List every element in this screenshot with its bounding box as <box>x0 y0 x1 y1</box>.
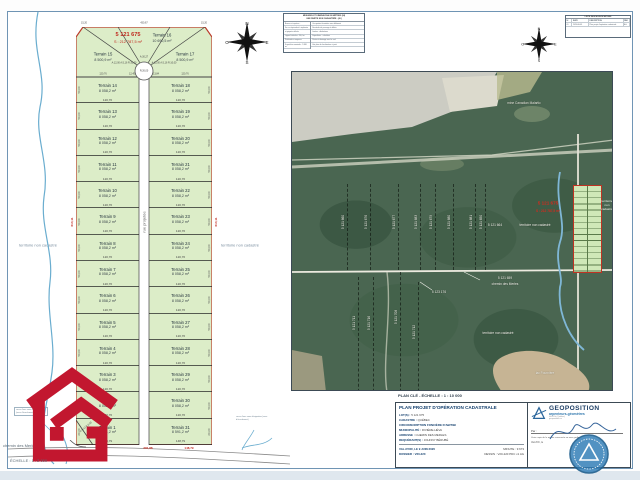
svg-text:O: O <box>521 43 524 47</box>
fan-left-name: Terrain 15 <box>83 52 123 57</box>
compass-rose-left: N S E O <box>225 20 269 64</box>
lot-cell-left: Terrain 98 058,2 m²120,76 <box>76 208 139 234</box>
lot-name: Terrain 30 <box>149 398 212 403</box>
lot-depth-dim-right: 60,60 <box>207 428 211 435</box>
svg-text:E: E <box>554 43 557 47</box>
lot-cell-left: Terrain 148 058,2 m²120,76 <box>76 77 139 103</box>
lot-cell-left: Terrain 138 058,2 m²120,76 <box>76 103 139 129</box>
lot-cell-right: Terrain 278 058,2 m²120,76 <box>149 314 212 340</box>
lot-width-dim: 120,76 <box>149 361 212 365</box>
plat-lot-number: 5 121 675 <box>116 32 141 38</box>
svg-text:N: N <box>245 21 248 26</box>
lot-area: 8 058,2 m² <box>149 115 212 119</box>
revision-cell: AG <box>624 23 630 26</box>
map-lot-label: territoire non cadastré <box>482 331 513 335</box>
map-caption: PLAN CLÉ - ÉCHELLE : 1 : 10 000 <box>398 393 462 398</box>
lot-depth-dim-left: 50,00 <box>77 244 81 251</box>
lot-name: Terrain 14 <box>76 83 139 88</box>
surveyor-seal <box>568 433 610 475</box>
footer-left: VAL-D'OR, LE 9 JUIN 2020 <box>399 447 435 451</box>
fan-right-dims: A:12,00 A:5,16 R:10,00 <box>151 63 177 66</box>
lot-cell-left: Terrain 118 058,2 m²120,76 <box>76 156 139 182</box>
lot-cell-right: Terrain 288 058,2 m²120,76 <box>149 340 212 366</box>
title-field: REQUÉRANT(S) : JOHNNY BÉRUBÉ <box>399 438 524 442</box>
fan-radius-label: R:26,00 <box>140 70 148 73</box>
revision-cell: PAR <box>624 19 630 22</box>
firm-logo-icon <box>531 405 547 421</box>
lot-depth-dim-right: 50,00 <box>207 376 211 383</box>
map-lot-boundary <box>420 184 421 270</box>
svg-text:S: S <box>538 59 541 62</box>
lot-area: 8 058,2 m² <box>149 89 212 93</box>
lot-area: 8 058,2 m² <box>149 194 212 198</box>
lot-cell-left: Terrain 128 058,2 m²120,76 <box>76 130 139 156</box>
legend-table: MESURES ET DIMENSIONS EN MÈTRES (SI) UNE… <box>283 13 365 53</box>
lot-name: Terrain 25 <box>149 267 212 272</box>
bottom-margin <box>0 471 640 480</box>
lot-depth-dim-left: 50,00 <box>77 349 81 356</box>
map-subject-lot-label: 5 121 675 <box>538 201 558 206</box>
lot-area: 8 058,2 m² <box>76 115 139 119</box>
lot-area: 8 058,2 m² <box>149 246 212 250</box>
map-lot-label: 5 121 676 <box>364 215 368 229</box>
lot-area: 8 058,2 m² <box>149 351 212 355</box>
lot-width-dim: 120,76 <box>149 203 212 207</box>
legend-right-column: Occupation forestière sans bâtimentServi… <box>311 22 364 49</box>
fan-right-name: Terrain 17 <box>165 52 205 57</box>
lot-name: Terrain 21 <box>149 162 212 167</box>
svg-text:O: O <box>225 40 229 45</box>
title-block-fields: PLAN PROJET D'OPÉRATION CADASTRALE LOT(S… <box>396 403 528 467</box>
lot-area: 8 058,2 m² <box>76 272 139 276</box>
dim-bottom-2: 148,79 <box>184 446 193 450</box>
map-lot-label: 5 121 677 <box>392 215 396 229</box>
lot-area: 8 058,2 m² <box>149 141 212 145</box>
lot-cell-right: Terrain 238 058,2 m²120,76 <box>149 208 212 234</box>
map-lot-label: 5 121 680 <box>447 215 451 229</box>
geoposition-watermark-logo <box>26 366 118 464</box>
title-block: PLAN PROJET D'OPÉRATION CADASTRALE LOT(S… <box>395 402 631 468</box>
lot-name: Terrain 11 <box>76 162 139 167</box>
map-lot-boundary <box>358 277 359 391</box>
lot-width-dim: 120,76 <box>76 203 139 207</box>
lot-name: Terrain 29 <box>149 372 212 377</box>
svg-text:S: S <box>245 60 248 64</box>
plan-sheet: territoire non cadastré territoire non c… <box>0 0 640 480</box>
lot-depth-dim-right: 50,00 <box>207 192 211 199</box>
svg-text:E: E <box>265 40 268 45</box>
lot-name: Terrain 28 <box>149 346 212 351</box>
lot-width-dim: 120,76 <box>76 282 139 286</box>
revision-data-row: 012020-06-09Plan projet d'opération cada… <box>566 23 630 27</box>
lot-area: 8 058,2 m² <box>149 220 212 224</box>
lot-name: Terrain 23 <box>149 214 212 219</box>
lot-width-dim: 120,76 <box>149 229 212 233</box>
lot-name: Terrain 4 <box>76 346 139 351</box>
lot-cell-left: Terrain 108 058,2 m²120,76 <box>76 182 139 208</box>
field-label: MUNICIPALITÉ : <box>399 428 422 432</box>
lot-width-dim: 120,76 <box>76 98 139 102</box>
firm-block: GEOPOSITION arpenteurs-géomètres Val-d'O… <box>528 403 630 467</box>
map-lot-boundary <box>370 184 371 270</box>
lot-depth-dim-right: 50,00 <box>207 113 211 120</box>
firm-name: GEOPOSITION <box>549 405 600 412</box>
map-lot-label: lac Fournière <box>536 371 555 375</box>
plat-scale-label: ÉCHELLE : 1 : 2 000 <box>10 458 47 463</box>
lot-depth-dim-left: 50,00 <box>77 87 81 94</box>
svg-text:N: N <box>538 27 541 31</box>
lot-depth-dim-right: 50,00 <box>207 271 211 278</box>
revision-cell: DATE <box>572 19 589 22</box>
field-label: CADASTRE : <box>399 418 418 422</box>
lot-cell-right: Terrain 318 591,2 m²148,79 <box>149 419 212 445</box>
field-list: LOT(S) : 5 121 675CADASTRE : QUÉBECCIRCO… <box>399 412 524 443</box>
lot-width-dim: 120,76 <box>76 308 139 312</box>
field-label: REQUÉRANT(S) : <box>399 438 424 442</box>
lot-cell-right: Terrain 208 058,2 m²120,76 <box>149 130 212 156</box>
lot-width-dim: 120,76 <box>149 334 212 338</box>
fan-center-area: 10 690,5 m² <box>142 39 182 43</box>
map-lot-boundary <box>475 184 476 270</box>
dim-top-center: 430,67 <box>140 22 147 25</box>
lot-cell-right: Terrain 198 058,2 m²120,76 <box>149 103 212 129</box>
lot-width-dim: 120,76 <box>76 124 139 128</box>
map-inset-subdivision <box>573 185 602 273</box>
field-label: ADRESSE : <box>399 433 416 437</box>
map-lot-boundary <box>453 184 454 270</box>
lot-name: Terrain 13 <box>76 109 139 114</box>
map-lot-boundary <box>435 184 436 270</box>
map-lot-label: 5 121 659 <box>498 276 512 280</box>
lot-name: Terrain 7 <box>76 267 139 272</box>
lot-depth-dim-right: 50,00 <box>207 139 211 146</box>
lot-area: 8 058,2 m² <box>149 404 212 408</box>
footer-right: MINUTE : 9 673 <box>503 447 524 451</box>
street-name-label: rue projetée <box>142 211 147 232</box>
lot-area: 8 058,2 m² <box>149 299 212 303</box>
map-lot-label: territoire non cadastré <box>519 223 550 227</box>
lot-cell-right: Terrain 258 058,2 m²120,76 <box>149 261 212 287</box>
key-map: territoire non cadastré 5 121 6605 121 6… <box>291 71 613 391</box>
lot-area: 8 058,2 m² <box>149 378 212 382</box>
lot-cell-left: Terrain 68 058,2 m²120,76 <box>76 287 139 313</box>
lot-name: Terrain 24 <box>149 241 212 246</box>
map-lot-label: 5 121 681 <box>469 215 473 229</box>
fan-arc-label: A:30,27 <box>140 56 148 59</box>
lot-cell-left: Terrain 58 058,2 m²120,76 <box>76 314 139 340</box>
lot-name: Terrain 5 <box>76 320 139 325</box>
map-lot-label: 5 123 176 <box>432 290 446 294</box>
map-lot-label: 5 121 716 <box>367 316 371 330</box>
legend-title-2: UNE PARTIE NON CADASTRÉE - (M.) <box>306 18 341 20</box>
lot-area: 8 058,2 m² <box>76 141 139 145</box>
lot-depth-dim-left: 50,00 <box>77 323 81 330</box>
fan-center-name: Terrain 16 <box>142 33 182 38</box>
lot-width-dim: 120,76 <box>149 308 212 312</box>
lot-width-dim: 120,76 <box>76 150 139 154</box>
lot-name: Terrain 20 <box>149 136 212 141</box>
map-lot-label: 5 121 683 <box>414 215 418 229</box>
lot-cell-right: Terrain 228 058,2 m²120,76 <box>149 182 212 208</box>
lot-depth-dim-right: 50,00 <box>207 402 211 409</box>
map-lot-label: 5 121 711 <box>352 316 356 330</box>
map-subject-lot-label: S : 212 787,5 m² <box>536 209 560 213</box>
legend-row: Superficie nominale : 5 860 m² <box>284 43 310 49</box>
lot-width-dim: 120,76 <box>149 98 212 102</box>
lot-cell-left: Terrain 88 058,2 m²120,76 <box>76 235 139 261</box>
title-footer-row: DOSSIER : V20-220DESSIN : V20-220 PDC v1… <box>399 452 524 456</box>
lot-name: Terrain 31 <box>149 425 212 430</box>
lot-cell-left: Terrain 48 058,2 m²120,76 <box>76 340 139 366</box>
revision-table: LISTE DES MODIFICATIONS N°DATEDESCRIPTIO… <box>565 15 631 38</box>
territory-right-label: territoire non cadastré <box>216 242 264 247</box>
lot-depth-dim-right: 50,00 <box>207 297 211 304</box>
lot-cell-right: Terrain 308 058,2 m²120,76 <box>149 392 212 418</box>
dim-right-edge: 610,11 <box>214 217 218 226</box>
lot-area: 8 058,2 m² <box>76 299 139 303</box>
lot-depth-dim-right: 50,00 <box>207 87 211 94</box>
dim-bottom-1: 281,88 <box>143 446 152 450</box>
lot-cell-right: Terrain 298 058,2 m²120,76 <box>149 366 212 392</box>
map-lot-label: 5 121 650 <box>479 215 483 229</box>
lot-area: 8 058,2 m² <box>149 272 212 276</box>
dim-top-right: 15,20 <box>201 22 207 25</box>
lot-depth-dim-left: 50,00 <box>77 113 81 120</box>
map-lot-label: mine Canadian Malartic <box>507 101 540 105</box>
map-lot-label: 5 121 708 <box>394 310 398 324</box>
fan-width-left: 120,76 <box>99 72 106 75</box>
lot-width-dim: 120,76 <box>149 150 212 154</box>
title-field: ADRESSE : CHEMIN DES MERLES <box>399 433 524 437</box>
lot-area: 8 058,2 m² <box>76 246 139 250</box>
lot-area: 8 591,2 m² <box>149 430 212 434</box>
lot-area: 8 058,2 m² <box>149 325 212 329</box>
lot-width-dim: 120,76 <box>149 255 212 259</box>
lot-width-dim: 120,76 <box>76 255 139 259</box>
revision-cell: DESCRIPTION <box>589 19 624 22</box>
lot-cell-left: Terrain 78 058,2 m²120,76 <box>76 261 139 287</box>
lot-area: 8 058,2 m² <box>76 89 139 93</box>
lot-width-dim: 120,76 <box>149 387 212 391</box>
lot-depth-dim-left: 50,00 <box>77 165 81 172</box>
lot-cell-right: Terrain 188 058,2 m²120,76 <box>149 77 212 103</box>
lot-depth-dim-right: 50,00 <box>207 165 211 172</box>
compass-rose-right: N S E O <box>521 26 557 62</box>
lot-depth-dim-left: 50,00 <box>77 271 81 278</box>
lot-width-dim: 148,79 <box>149 439 212 443</box>
lot-name: Terrain 8 <box>76 241 139 246</box>
dim-left-edge: 610,11 <box>70 217 74 226</box>
river-note-right: cours d'eau sans désignation (sens d'éco… <box>236 416 268 421</box>
lot-cell-right: Terrain 248 058,2 m²120,76 <box>149 235 212 261</box>
revision-cell: Plan projet d'opération cadastrale <box>589 23 624 26</box>
lot-name: Terrain 18 <box>149 83 212 88</box>
lot-width-dim: 120,76 <box>149 177 212 181</box>
lot-area: 8 058,2 m² <box>76 351 139 355</box>
lot-name: Terrain 26 <box>149 293 212 298</box>
map-lot-label: 5 121 712 <box>412 325 416 339</box>
map-lot-label: chemin des Merles <box>492 282 519 286</box>
lot-name: Terrain 6 <box>76 293 139 298</box>
lot-name: Terrain 22 <box>149 188 212 193</box>
revision-rows: N°DATEDESCRIPTIONPAR012020-06-09Plan pro… <box>566 19 630 27</box>
lot-depth-dim-left: 50,00 <box>77 297 81 304</box>
title-block-footer: VAL-D'OR, LE 9 JUIN 2020MINUTE : 9 673DO… <box>399 444 524 456</box>
lot-width-dim: 120,76 <box>149 124 212 128</box>
lot-width-dim: 120,76 <box>76 229 139 233</box>
lot-name: Terrain 10 <box>76 188 139 193</box>
fan-width-inner-left: 12,45 <box>129 72 135 75</box>
map-lot-boundary <box>373 277 374 391</box>
legend-left-column: Bornes et repères :Fer ou équivalent à i… <box>284 22 311 49</box>
lot-name: Terrain 19 <box>149 109 212 114</box>
revision-cell: 2020-06-09 <box>572 23 589 26</box>
lot-cell-right: Terrain 268 058,2 m²120,76 <box>149 287 212 313</box>
dim-top-left: 15,20 <box>81 22 87 25</box>
lot-depth-dim-right: 50,00 <box>207 244 211 251</box>
map-lot-boundary <box>347 184 348 270</box>
map-lot-boundary <box>400 272 401 391</box>
lot-width-dim: 120,76 <box>76 361 139 365</box>
map-lot-label: 5 121 664 <box>488 223 502 227</box>
field-label: LOT(S) : <box>399 413 411 417</box>
map-lot-boundary <box>485 184 486 270</box>
map-lot-label: 5 121 660 <box>341 215 345 229</box>
lot-area: 8 058,2 m² <box>76 220 139 224</box>
lot-name: Terrain 12 <box>76 136 139 141</box>
lot-depth-dim-left: 50,00 <box>77 139 81 146</box>
map-lot-boundary <box>398 184 399 270</box>
plat-lot-area: S : 212 787,5 m² <box>114 40 142 44</box>
lot-name: Terrain 27 <box>149 320 212 325</box>
footer-left: DOSSIER : V20-220 <box>399 452 426 456</box>
lot-width-dim: 120,76 <box>149 282 212 286</box>
lot-width-dim: 120,76 <box>76 177 139 181</box>
fan-left-dims: A:12,00 A:5,16 R:10,00 <box>111 63 137 66</box>
fan-width-inner-right: 13,84 <box>153 72 159 75</box>
map-lot-boundary <box>418 282 419 391</box>
plan-title: PLAN PROJET D'OPÉRATION CADASTRALE <box>399 405 524 410</box>
lot-width-dim: 120,76 <box>149 413 212 417</box>
title-field: LOT(S) : 5 121 675 <box>399 413 524 417</box>
lot-depth-dim-left: 50,00 <box>77 218 81 225</box>
lot-depth-dim-right: 50,00 <box>207 218 211 225</box>
title-field: CIRCONSCRIPTION FONCIÈRE D'ABITIBI <box>399 423 524 427</box>
lot-area: 8 058,2 m² <box>76 325 139 329</box>
lot-area: 8 058,2 m² <box>76 167 139 171</box>
lot-depth-dim-left: 50,00 <box>77 192 81 199</box>
map-lot-label: 5 121 679 <box>429 215 433 229</box>
lot-area: 8 058,2 m² <box>76 194 139 198</box>
lot-name: Terrain 9 <box>76 214 139 219</box>
title-field: MUNICIPALITÉ : RIVIÈRE-HÉVA <box>399 428 524 432</box>
lot-depth-dim-right: 50,00 <box>207 349 211 356</box>
lot-width-dim: 120,76 <box>76 334 139 338</box>
lot-area: 8 058,2 m² <box>149 167 212 171</box>
title-field: CADASTRE : QUÉBEC <box>399 418 524 422</box>
fan-width-right: 120,76 <box>181 72 188 75</box>
title-footer-row: VAL-D'OR, LE 9 JUIN 2020MINUTE : 9 673 <box>399 447 524 451</box>
footer-right: DESSIN : V20-220 PDC v1 AG <box>484 452 524 456</box>
legend-row: Voir plan de localisation ci-joint <box>311 43 364 47</box>
lot-depth-dim-right: 50,00 <box>207 323 211 330</box>
map-territory-edge-label: territoire non cadastré <box>600 200 613 212</box>
lot-cell-right: Terrain 218 058,2 m²120,76 <box>149 156 212 182</box>
field-label: CIRCONSCRIPTION FONCIÈRE D'ABITIBI <box>399 423 456 427</box>
